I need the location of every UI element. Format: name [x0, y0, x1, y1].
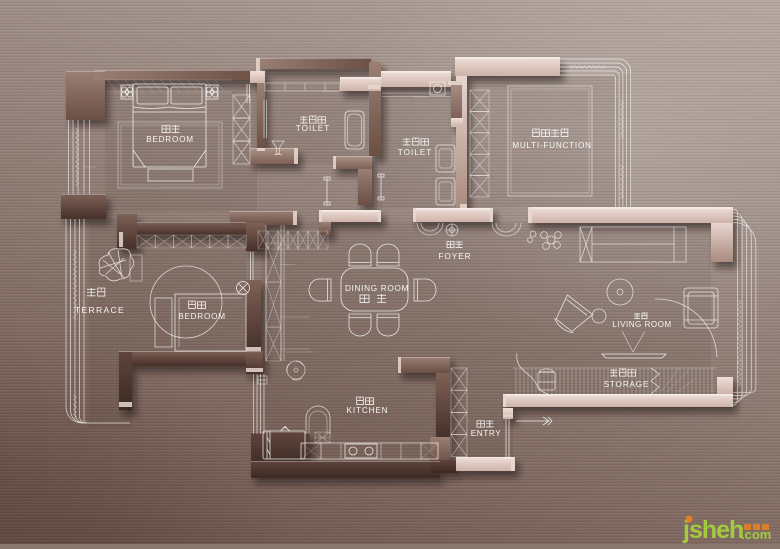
svg-text:TERRACE: TERRACE — [75, 305, 125, 315]
svg-text:TOILET: TOILET — [296, 124, 331, 133]
svg-text:BEDROOM: BEDROOM — [146, 135, 194, 144]
svg-text:LIVING ROOM: LIVING ROOM — [612, 320, 671, 329]
svg-text:STORAGE: STORAGE — [604, 380, 650, 389]
svg-text:DINING ROOM: DINING ROOM — [345, 284, 409, 293]
svg-text:FOYER: FOYER — [438, 252, 471, 261]
svg-text:KITCHEN: KITCHEN — [347, 406, 389, 415]
svg-text:ENTRY: ENTRY — [471, 429, 502, 438]
svg-text:TOILET: TOILET — [398, 148, 433, 157]
svg-text:BEDROOM: BEDROOM — [178, 312, 226, 321]
svg-text:MULTI-FUNCTION: MULTI-FUNCTION — [512, 141, 591, 150]
